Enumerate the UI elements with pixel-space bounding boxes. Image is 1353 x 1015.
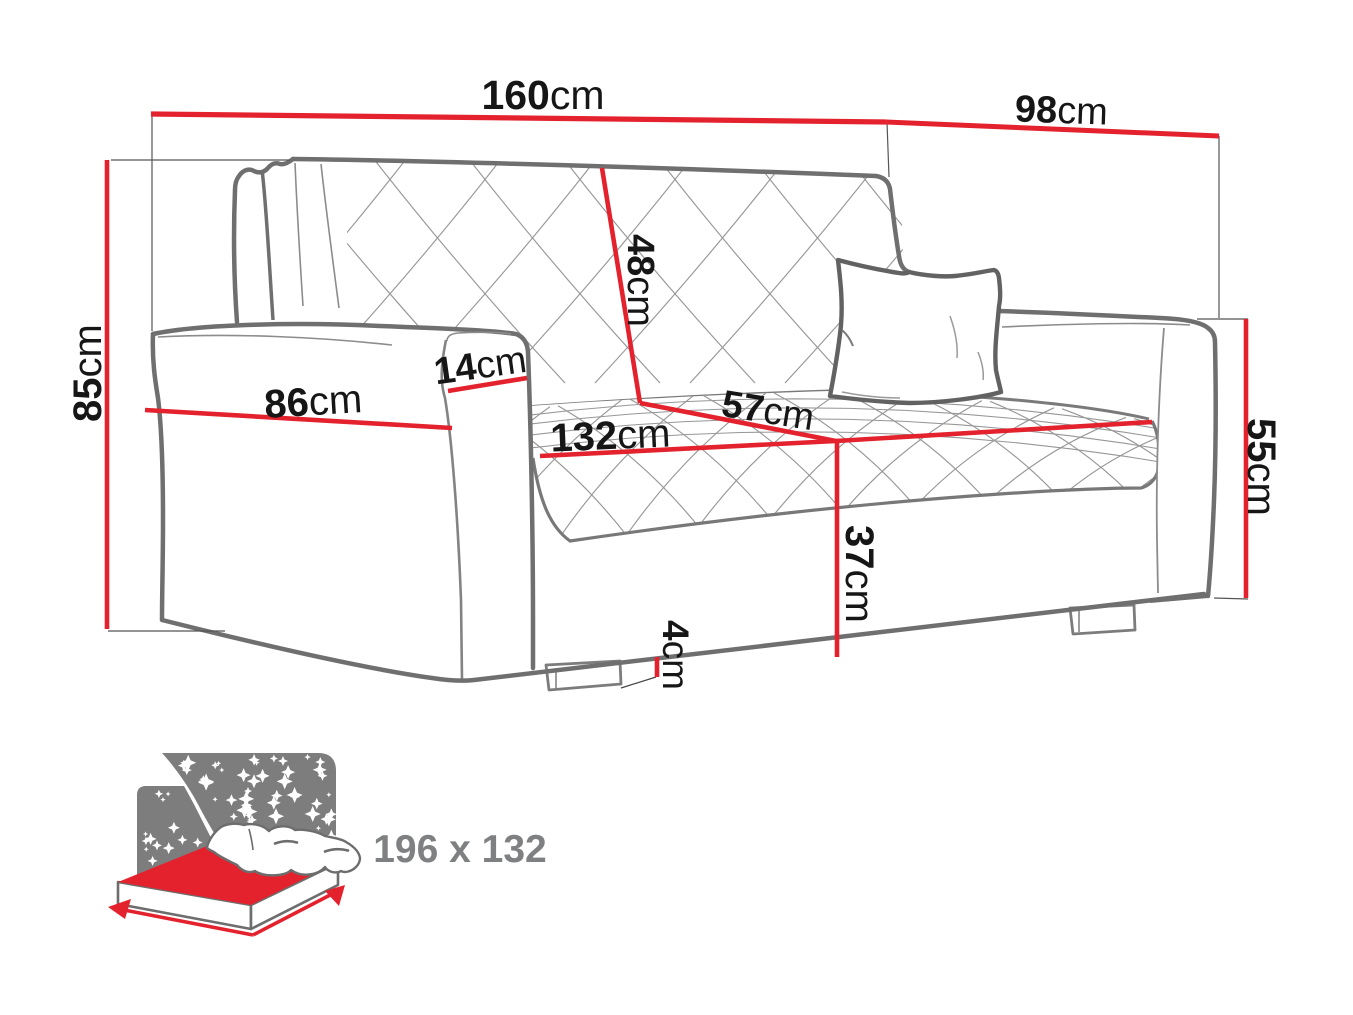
svg-text:85cm: 85cm	[66, 324, 110, 422]
svg-text:196 x 132: 196 x 132	[373, 828, 547, 871]
svg-text:132cm: 132cm	[549, 411, 671, 460]
svg-text:160cm: 160cm	[481, 72, 604, 118]
svg-text:98cm: 98cm	[1014, 88, 1108, 133]
svg-text:48cm: 48cm	[619, 234, 661, 327]
svg-text:4cm: 4cm	[655, 620, 696, 690]
svg-text:37cm: 37cm	[837, 525, 881, 623]
svg-text:55cm: 55cm	[1239, 418, 1283, 516]
svg-text:86cm: 86cm	[263, 377, 363, 427]
